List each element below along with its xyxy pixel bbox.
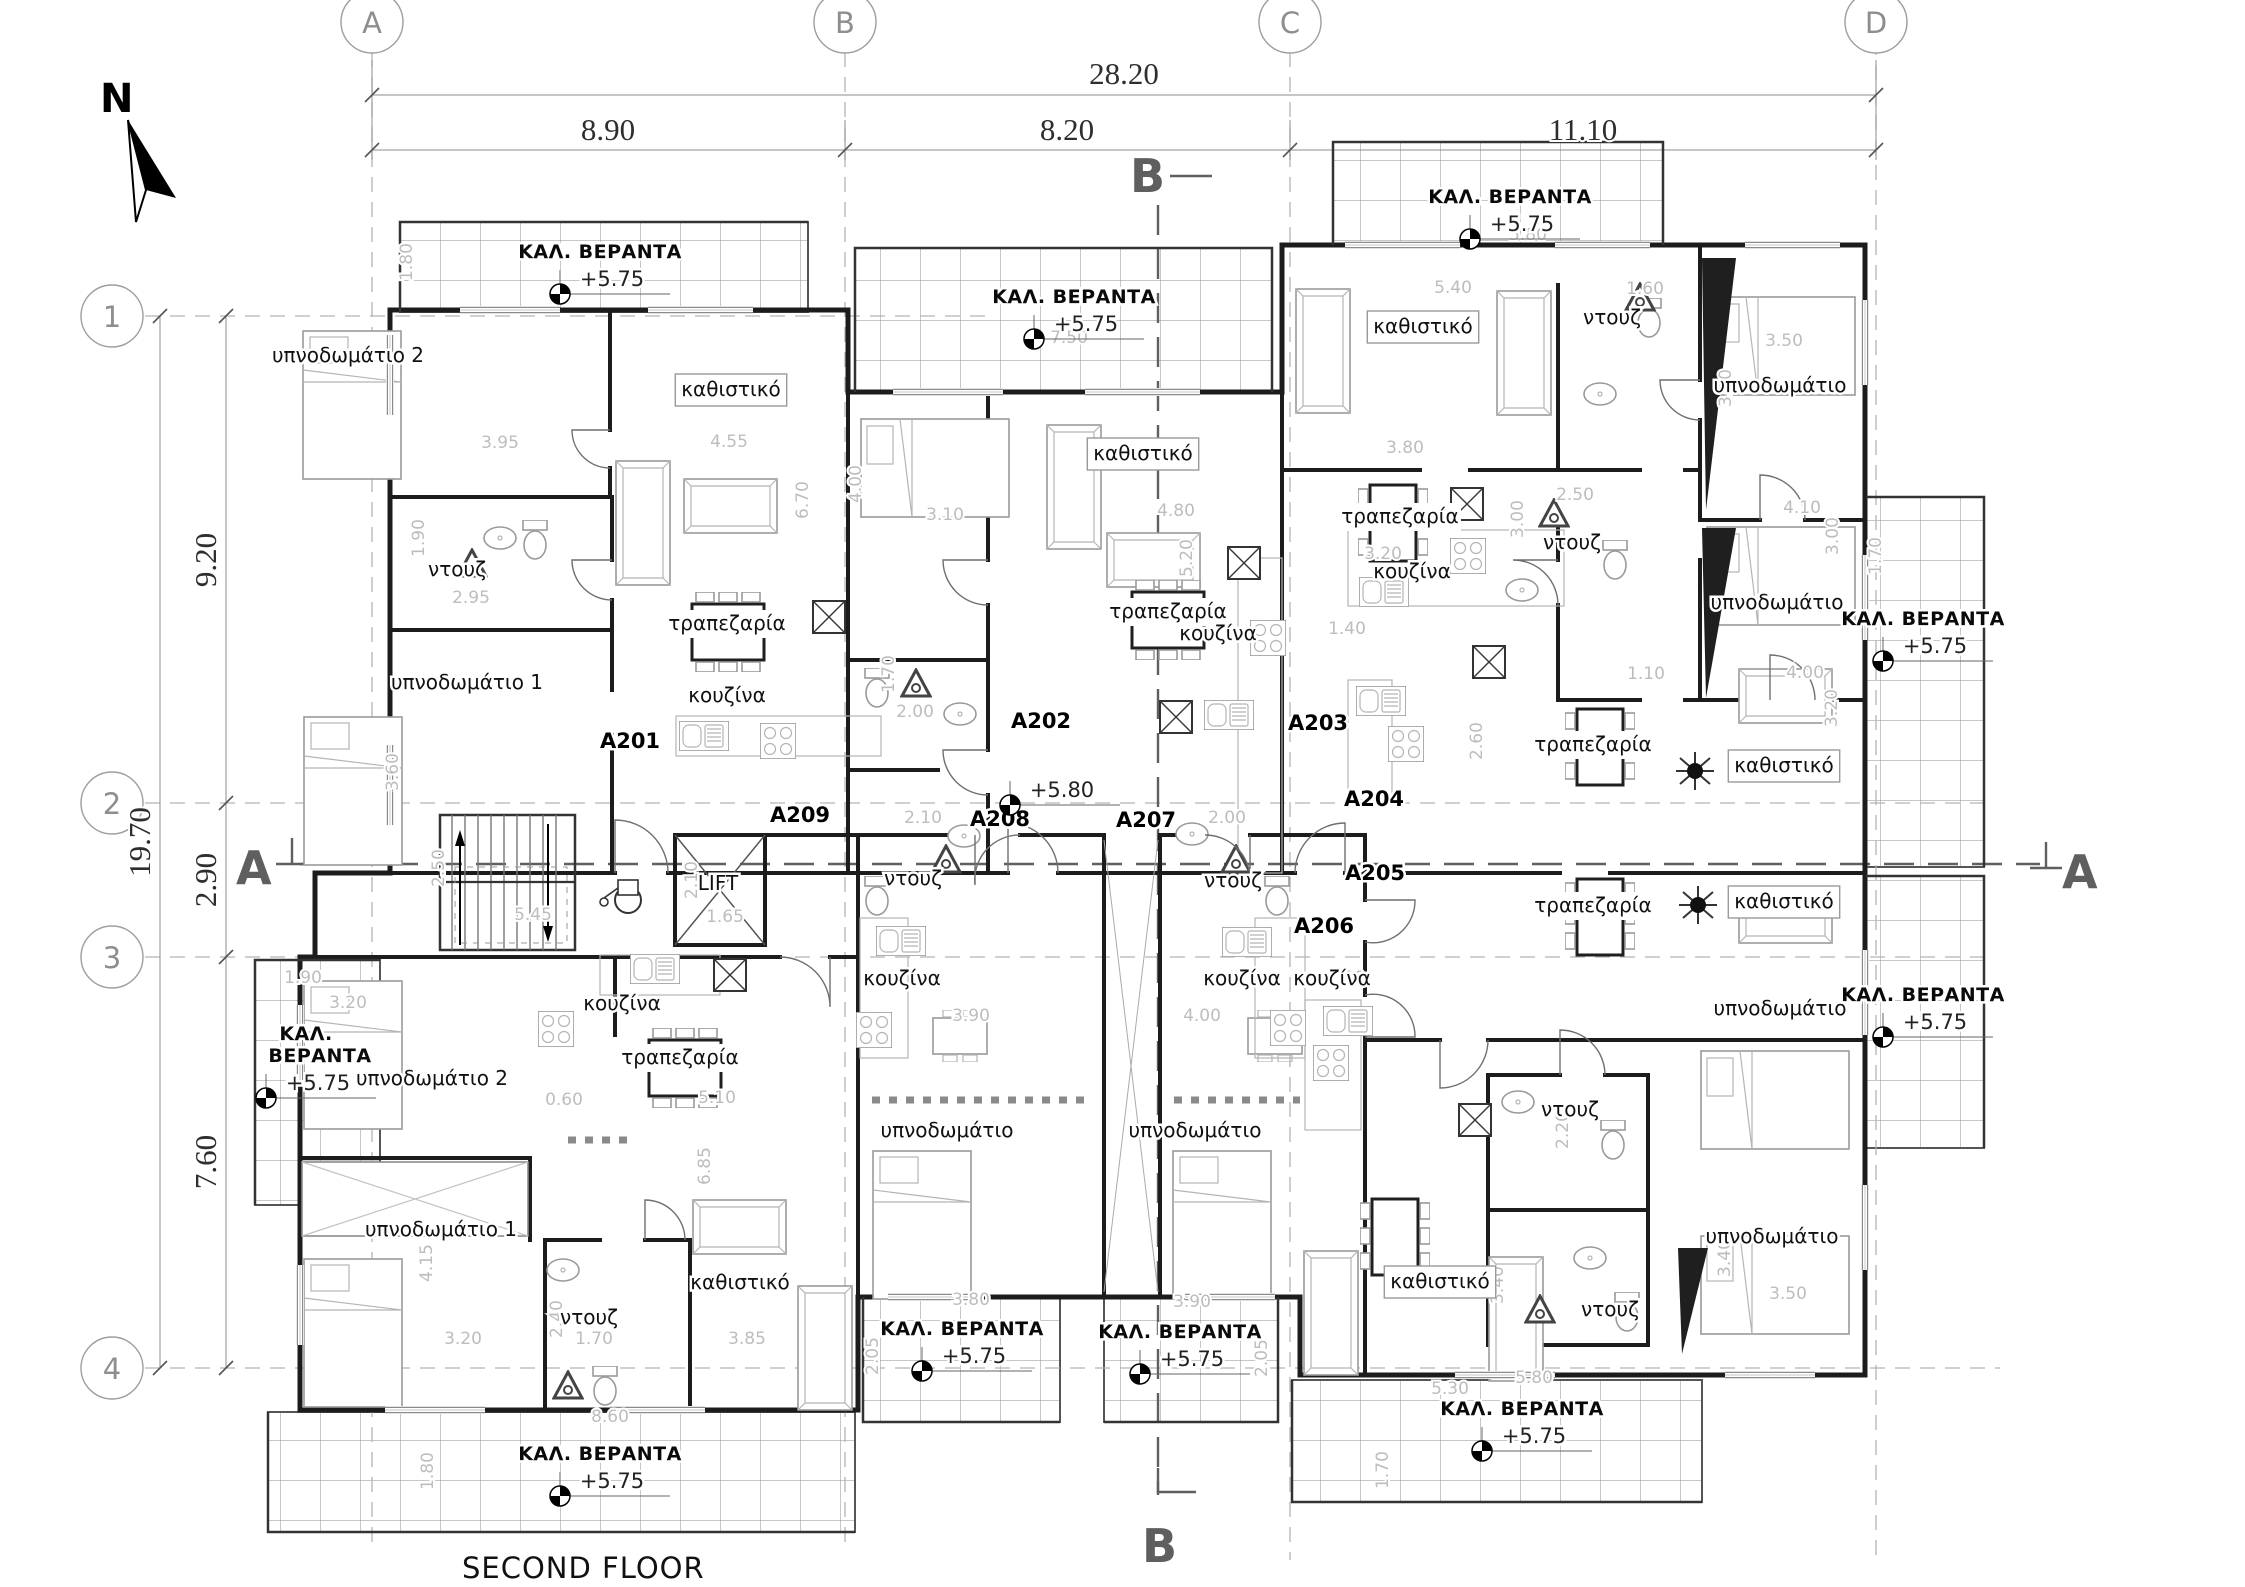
interior-dimension: 3.90 <box>952 1006 990 1026</box>
room-label: ντουζ <box>1543 530 1601 554</box>
window <box>1861 1185 1869 1270</box>
room-label: κουζίνα <box>1203 966 1281 990</box>
window <box>1725 1371 1815 1379</box>
window <box>1345 241 1460 249</box>
apartment-label-A204: A204 <box>1344 787 1404 811</box>
room-label: υπνοδωμάτιο <box>1714 996 1847 1020</box>
section-letter-B: B <box>1142 1519 1177 1573</box>
apartment-label-A208: A208 <box>970 807 1030 831</box>
interior-dimension: 2.95 <box>452 588 490 608</box>
shaft-diagonals <box>1104 840 1158 1292</box>
door-swing <box>645 1200 685 1240</box>
section-letter-A: A <box>236 841 272 895</box>
door-swing <box>943 750 988 795</box>
interior-dimension: 3.50 <box>1769 1284 1807 1304</box>
room-label: υπνοδωμάτιο <box>1129 1118 1262 1142</box>
room-label: καθιστικό <box>1093 441 1192 465</box>
dimension-text: 9.20 <box>188 533 223 587</box>
interior-dimension: 4.00 <box>1183 1006 1221 1026</box>
window <box>385 1406 485 1414</box>
interior-dimension: 2.05 <box>863 1337 883 1375</box>
floor-plan: N <box>0 0 2245 1587</box>
room-label: κουζίνα <box>1373 559 1451 583</box>
dimension-text: 8.90 <box>581 112 635 147</box>
dimension-text: 19.70 <box>122 807 157 877</box>
interior-dimension: 3.95 <box>481 433 519 453</box>
room-label: καθιστικό <box>1390 1269 1489 1293</box>
grid-letter-B: B <box>835 6 855 40</box>
apartment-label-A207: A207 <box>1116 808 1176 832</box>
level-value: +5.75 <box>286 1071 350 1095</box>
interior-dimension: 5.80 <box>1515 1368 1553 1388</box>
interior-dimension: 2.05 <box>1252 1339 1272 1377</box>
door-swing <box>1560 1030 1605 1075</box>
grid-number-4: 4 <box>103 1352 121 1386</box>
north-label: N <box>100 76 133 122</box>
interior-dimension: 8.60 <box>591 1407 629 1427</box>
interior-dimension: 4.55 <box>710 432 748 452</box>
interior-dimension: 3.20 <box>1822 689 1842 727</box>
interior-dimension: 1.70 <box>575 1329 613 1349</box>
stair-core <box>446 815 1158 1292</box>
dimension-text: 2.90 <box>188 853 223 907</box>
room-label: τραπεζαρία <box>668 611 785 635</box>
window <box>1861 300 1869 385</box>
interior-dimension: 5.40 <box>1434 278 1472 298</box>
room-label: LIFT <box>698 871 739 895</box>
section-letter-A: A <box>2062 845 2098 899</box>
interior-dimension: 3.80 <box>952 1290 990 1310</box>
interior-dimension: 1.90 <box>284 968 322 988</box>
room-label: ντουζ <box>1204 868 1262 892</box>
grid-number-2: 2 <box>103 787 121 821</box>
level-value: +5.75 <box>1054 312 1118 336</box>
level-value: +5.75 <box>1903 634 1967 658</box>
room-label: υπνοδωμάτιο <box>1714 373 1847 397</box>
door-swing <box>943 560 988 605</box>
interior-dimension-texts: 3.952.954.556.703.104.805.201.702.003.80… <box>284 225 1886 1490</box>
apartment-label-A203: A203 <box>1288 711 1348 735</box>
dimension-text: 28.20 <box>1089 56 1159 91</box>
room-label: ντουζ <box>1541 1097 1599 1121</box>
interior-dimension: 2.00 <box>1208 808 1246 828</box>
door-swing <box>1660 380 1700 420</box>
room-label: κουζίνα <box>688 683 766 707</box>
interior-dimension: 3.20 <box>329 993 367 1013</box>
drawing-title: SECOND FLOOR <box>462 1551 705 1585</box>
room-label: ντουζ <box>1581 1297 1639 1321</box>
veranda-label: ΚΑΛ. ΒΕΡΑΝΤΑ <box>992 286 1156 308</box>
room-label: υπνοδωμάτιο <box>1711 590 1844 614</box>
north-arrow: N <box>100 76 176 222</box>
level-value: +5.75 <box>1160 1347 1224 1371</box>
dimension-text: 7.60 <box>188 1135 223 1189</box>
door-swing <box>1295 823 1345 873</box>
interior-dimension: 4.00 <box>846 465 866 503</box>
interior-dimension: 1.60 <box>1626 279 1664 299</box>
interior-dimension: 3.50 <box>1765 331 1803 351</box>
level-value: +5.80 <box>1030 778 1094 802</box>
room-label: κουζίνα <box>1179 621 1257 645</box>
room-label: κουζίνα <box>583 991 661 1015</box>
grid-letter-A: A <box>362 6 382 40</box>
interior-dimension: 1.40 <box>1328 619 1366 639</box>
floor-plan-canvas: N <box>0 0 2245 1587</box>
dimension-text: 8.20 <box>1040 112 1094 147</box>
interior-dimension: 1.70 <box>1866 537 1886 575</box>
room-label: τραπεζαρία <box>1109 599 1226 623</box>
room-label: ντουζ <box>884 866 942 890</box>
interior-dimension: 2.60 <box>1467 722 1487 760</box>
grid-letter-D: D <box>1865 6 1887 40</box>
stair-arrow-up-head <box>455 830 465 846</box>
room-label: καθιστικό <box>690 1270 789 1294</box>
interior-dimension: 6.85 <box>695 1147 715 1185</box>
grid-letter-C: C <box>1280 6 1300 40</box>
room-label: υπνοδωμάτιο 2 <box>356 1066 508 1090</box>
door-swing <box>1365 900 1415 943</box>
room-label: τραπεζαρία <box>621 1045 738 1069</box>
window <box>1085 388 1200 396</box>
section-letter-B: B <box>1130 149 1165 203</box>
door-swing <box>572 560 612 600</box>
window <box>893 388 1003 396</box>
dimension-text: 11.10 <box>1549 112 1618 147</box>
window <box>460 306 560 314</box>
room-label: κουζίνα <box>863 966 941 990</box>
interior-dimension: 4.00 <box>1786 663 1824 683</box>
stair-arrow-down-head <box>543 926 553 942</box>
interior-dimension: 1.70 <box>1373 1451 1393 1489</box>
level-value: +5.75 <box>580 1469 644 1493</box>
interior-dimension: 2.50 <box>1556 485 1594 505</box>
room-label: καθιστικό <box>1734 753 1833 777</box>
veranda-bottom-left <box>268 1412 855 1532</box>
door-swing <box>780 957 830 1007</box>
interior-dimension: 0.60 <box>545 1090 583 1110</box>
room-label: ντουζ <box>1583 305 1641 329</box>
interior-dimension: 1.80 <box>418 1452 438 1490</box>
apartment-label-A205: A205 <box>1345 861 1405 885</box>
door-swing <box>1440 1040 1488 1088</box>
room-label: υπνοδωμάτιο 2 <box>272 343 424 367</box>
room-label: καθιστικό <box>1734 889 1833 913</box>
room-label: τραπεζαρία <box>1534 732 1651 756</box>
interior-dimension: 4.15 <box>417 1244 437 1282</box>
room-label: τραπεζαρία <box>1534 893 1651 917</box>
interior-dimension: 4.80 <box>1157 501 1195 521</box>
interior-dimension: 3.60 <box>383 753 403 791</box>
apartment-label-A201: A201 <box>600 729 660 753</box>
interior-dimension: 3.00 <box>1508 500 1528 538</box>
interior-dimension: 3.10 <box>926 505 964 525</box>
room-label: καθιστικό <box>1373 314 1472 338</box>
room-label: υπνοδωμάτιο 1 <box>365 1217 517 1241</box>
level-value: +5.75 <box>1903 1010 1967 1034</box>
interior-dimension: 2.10 <box>904 808 942 828</box>
apartment-label-A209: A209 <box>770 803 830 827</box>
interior-dimension: 1.65 <box>706 907 744 927</box>
interior-dimension: 3.90 <box>1173 1292 1211 1312</box>
grid-number-1: 1 <box>103 300 121 334</box>
veranda-label: ΚΑΛ. ΒΕΡΑΝΤΑ <box>1440 1398 1604 1420</box>
interior-dimension: 1.80 <box>397 243 417 281</box>
veranda-label: ΒΕΡΑΝΤΑ <box>268 1045 371 1067</box>
grid-number-3: 3 <box>103 941 121 975</box>
apartment-label-A206: A206 <box>1294 914 1354 938</box>
room-label: υπνοδωμάτιο 1 <box>391 670 543 694</box>
level-value: +5.75 <box>1502 1424 1566 1448</box>
level-value: +5.75 <box>942 1344 1006 1368</box>
interior-dimension: 5.10 <box>698 1088 736 1108</box>
veranda-label: ΚΑΛ. ΒΕΡΑΝΤΑ <box>1841 608 2005 630</box>
interior-dimension: 1.90 <box>409 519 429 557</box>
veranda-label: ΚΑΛ. ΒΕΡΑΝΤΑ <box>518 1443 682 1465</box>
level-value: +5.75 <box>1490 212 1554 236</box>
door-swing <box>975 835 1020 885</box>
interior-dimension: 3.20 <box>444 1329 482 1349</box>
interior-dimension: 5.30 <box>1431 1379 1469 1399</box>
interior-dimension: 4.10 <box>1783 498 1821 518</box>
window <box>1555 241 1650 249</box>
interior-dimension: 3.80 <box>1386 438 1424 458</box>
room-label: ντουζ <box>560 1305 618 1329</box>
room-label: καθιστικό <box>681 377 780 401</box>
door-swing <box>572 430 610 468</box>
window <box>648 306 753 314</box>
wheelchair-icon <box>600 880 641 913</box>
interior-dimension: 1.70 <box>879 655 899 693</box>
room-label: ντουζ <box>428 557 486 581</box>
room-label: υπνοδωμάτιο <box>1706 1224 1839 1248</box>
interior-dimension: 2.00 <box>896 702 934 722</box>
veranda-label: ΚΑΛ. ΒΕΡΑΝΤΑ <box>1098 1321 1262 1343</box>
interior-dimension: 1.10 <box>1627 664 1665 684</box>
veranda-label: ΚΑΛ. ΒΕΡΑΝΤΑ <box>1428 186 1592 208</box>
apartment-label-A202: A202 <box>1011 709 1071 733</box>
interior-dimension: 5.45 <box>514 905 552 925</box>
interior-dimension: 3.00 <box>1823 517 1843 555</box>
room-label: κουζίνα <box>1293 966 1371 990</box>
window <box>1745 241 1840 249</box>
room-label: υπνοδωμάτιο <box>881 1118 1014 1142</box>
level-symbol-quadrant <box>1010 795 1020 805</box>
veranda-label: ΚΑΛ. <box>279 1023 332 1045</box>
interior-dimension: 6.70 <box>793 481 813 519</box>
interior-dimension: 3.85 <box>728 1329 766 1349</box>
window <box>296 1265 304 1345</box>
veranda-label: ΚΑΛ. ΒΕΡΑΝΤΑ <box>518 241 682 263</box>
veranda-label: ΚΑΛ. ΒΕΡΑΝΤΑ <box>1841 984 2005 1006</box>
interior-dimension: 5.20 <box>1177 539 1197 577</box>
room-label: τραπεζαρία <box>1341 504 1458 528</box>
interior-dimension: 2.50 <box>429 849 449 887</box>
level-value: +5.75 <box>580 267 644 291</box>
veranda-label: ΚΑΛ. ΒΕΡΑΝΤΑ <box>880 1318 1044 1340</box>
